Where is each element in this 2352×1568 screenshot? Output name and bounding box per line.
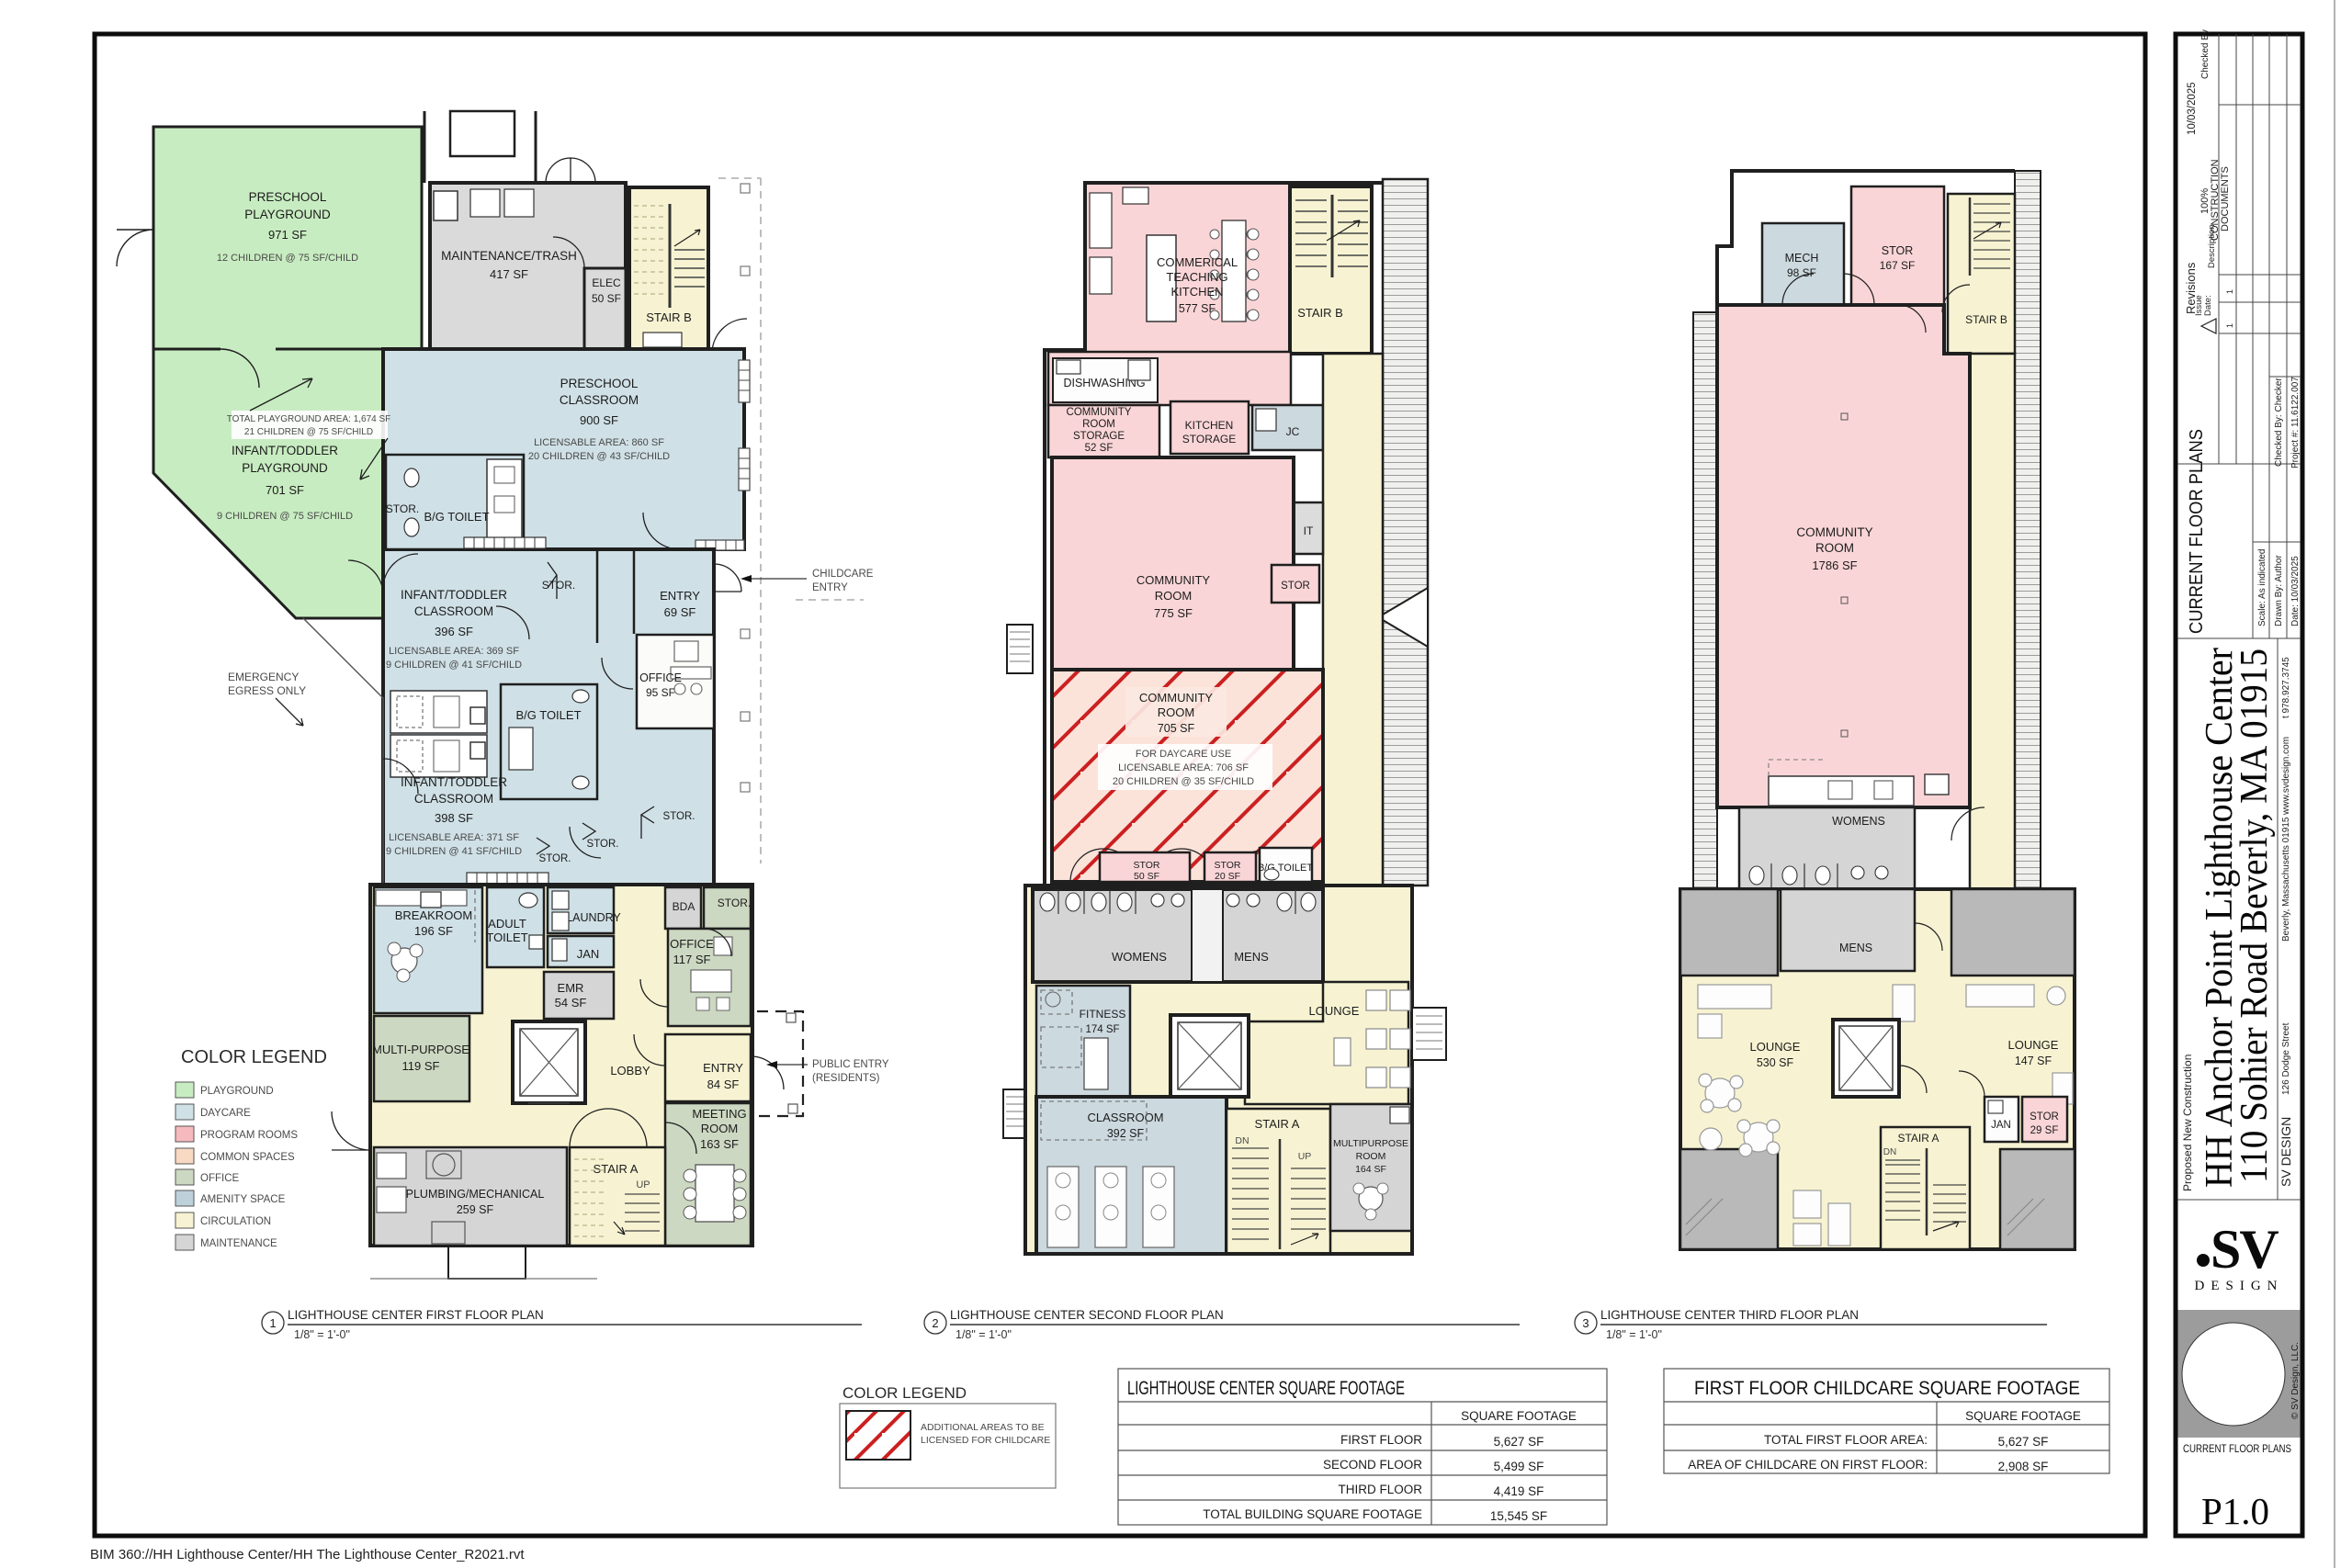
svg-text:705 SF: 705 SF: [1158, 722, 1195, 735]
svg-text:20 SF: 20 SF: [1215, 871, 1240, 882]
svg-text:ENTRY: ENTRY: [703, 1061, 743, 1075]
svg-text:20 CHILDREN @ 43 SF/CHILD: 20 CHILDREN @ 43 SF/CHILD: [528, 451, 670, 462]
svg-text:DESIGN: DESIGN: [2195, 1279, 2284, 1293]
svg-text:CLASSROOM: CLASSROOM: [560, 393, 639, 407]
svg-text:STAIR B: STAIR B: [1297, 306, 1343, 320]
svg-text:4,419 SF: 4,419 SF: [1494, 1484, 1544, 1498]
svg-text:Project #: 11.6122.007: Project #: 11.6122.007: [2290, 377, 2301, 468]
svg-text:SECOND FLOOR: SECOND FLOOR: [1323, 1458, 1422, 1472]
svg-text:MAINTENANCE/TRASH: MAINTENANCE/TRASH: [441, 249, 577, 263]
svg-text:STAIR A: STAIR A: [1897, 1132, 1939, 1145]
svg-text:Beverly, Massachusetts 01915: Beverly, Massachusetts 01915: [2281, 817, 2291, 942]
svg-text:84 SF: 84 SF: [707, 1077, 740, 1091]
svg-text:900 SF: 900 SF: [580, 413, 618, 427]
svg-text:UP: UP: [636, 1179, 650, 1190]
svg-text:PRESCHOOL: PRESCHOOL: [560, 377, 639, 390]
svg-text:SQUARE FOOTAGE: SQUARE FOOTAGE: [1965, 1409, 2081, 1423]
svg-text:INFANT/TODDLER: INFANT/TODDLER: [401, 588, 507, 602]
svg-text:KITCHEN: KITCHEN: [1185, 419, 1234, 432]
svg-text:LIGHTHOUSE CENTER SECOND FLOOR: LIGHTHOUSE CENTER SECOND FLOOR PLAN: [950, 1308, 1224, 1322]
svg-text:LIGHTHOUSE CENTER SQUARE FOOTA: LIGHTHOUSE CENTER SQUARE FOOTAGE: [1127, 1378, 1405, 1399]
svg-text:Proposed New Construction: Proposed New Construction: [2181, 1055, 2194, 1191]
svg-text:FIRST FLOOR: FIRST FLOOR: [1340, 1433, 1422, 1447]
svg-text:21 CHILDREN @ 75 SF/CHILD: 21 CHILDREN @ 75 SF/CHILD: [244, 427, 373, 437]
svg-text:9 CHILDREN @ 75 SF/CHILD: 9 CHILDREN @ 75 SF/CHILD: [217, 511, 353, 522]
svg-text:54 SF: 54 SF: [555, 996, 587, 1010]
svg-text:29 SF: 29 SF: [2030, 1125, 2059, 1136]
svg-text:MENS: MENS: [1234, 950, 1269, 964]
svg-text:STOR: STOR: [1882, 244, 1914, 257]
svg-text:MEETING: MEETING: [692, 1107, 746, 1121]
svg-text:CHILDCARE: CHILDCARE: [812, 569, 874, 580]
svg-text:WOMENS: WOMENS: [1112, 950, 1167, 964]
svg-text:ENTRY: ENTRY: [812, 582, 848, 593]
svg-text:FIRST FLOOR CHILDCARE SQUARE F: FIRST FLOOR CHILDCARE SQUARE FOOTAGE: [1694, 1378, 2080, 1399]
svg-text:SQUARE FOOTAGE: SQUARE FOOTAGE: [1461, 1409, 1577, 1423]
svg-text:THIRD FLOOR: THIRD FLOOR: [1338, 1483, 1422, 1496]
svg-text:9 CHILDREN @ 41 SF/CHILD: 9 CHILDREN @ 41 SF/CHILD: [386, 846, 522, 857]
svg-text:STORAGE: STORAGE: [1073, 431, 1125, 442]
svg-text:147 SF: 147 SF: [2015, 1055, 2052, 1067]
svg-text:174 SF: 174 SF: [1085, 1024, 1119, 1035]
svg-text:COMMUNITY: COMMUNITY: [1067, 407, 1132, 418]
svg-text:Scale: As indicated: Scale: As indicated: [2257, 549, 2267, 627]
svg-text:12 CHILDREN @ 75 SF/CHILD: 12 CHILDREN @ 75 SF/CHILD: [217, 253, 358, 264]
svg-text:ADULT: ADULT: [488, 917, 526, 931]
svg-text:ROOM: ROOM: [701, 1122, 738, 1135]
svg-text:STOR.: STOR.: [539, 853, 571, 864]
svg-text:OFFICE: OFFICE: [200, 1173, 239, 1184]
svg-text:STOR.: STOR.: [542, 579, 575, 592]
svg-text:TEACHING: TEACHING: [1166, 270, 1227, 284]
svg-text:ROOM: ROOM: [1158, 705, 1194, 719]
svg-text:OFFICE: OFFICE: [670, 937, 714, 951]
svg-text:119 SF: 119 SF: [402, 1059, 440, 1073]
svg-text:LOUNGE: LOUNGE: [2008, 1038, 2059, 1052]
svg-text:STOR.: STOR.: [386, 502, 419, 515]
svg-text:EMERGENCY: EMERGENCY: [228, 671, 299, 683]
svg-text:2,908 SF: 2,908 SF: [1998, 1460, 2049, 1473]
svg-text:STORAGE: STORAGE: [1182, 433, 1236, 446]
svg-text:JAN: JAN: [577, 947, 600, 961]
svg-text:398 SF: 398 SF: [435, 811, 473, 825]
svg-text:MENS: MENS: [1839, 942, 1872, 954]
svg-text:5,627 SF: 5,627 SF: [1494, 1435, 1544, 1449]
svg-text:110 Sohier Road Beverly, MA 01: 110 Sohier Road Beverly, MA 01915: [2233, 649, 2276, 1183]
svg-text:ENTRY: ENTRY: [660, 589, 700, 603]
svg-text:15,545 SF: 15,545 SF: [1490, 1509, 1547, 1523]
svg-text:STOR: STOR: [1134, 860, 1160, 871]
svg-text:196 SF: 196 SF: [414, 924, 453, 938]
svg-text:MAINTENANCE: MAINTENANCE: [200, 1238, 277, 1249]
svg-text:FOR DAYCARE USE: FOR DAYCARE USE: [1136, 749, 1231, 760]
svg-text:417 SF: 417 SF: [490, 267, 528, 281]
svg-text:BDA: BDA: [673, 900, 695, 913]
svg-text:ELEC: ELEC: [592, 276, 621, 289]
svg-text:Date:: Date:: [2203, 295, 2213, 316]
svg-text:52 SF: 52 SF: [1085, 443, 1114, 454]
svg-text:PLUMBING/MECHANICAL: PLUMBING/MECHANICAL: [406, 1188, 545, 1201]
svg-text:STAIR B: STAIR B: [646, 310, 692, 324]
svg-text:COMMUNITY: COMMUNITY: [1139, 691, 1213, 705]
svg-text:STAIR A: STAIR A: [594, 1162, 639, 1176]
svg-text:JC: JC: [1286, 425, 1300, 438]
svg-text:DAYCARE: DAYCARE: [200, 1108, 251, 1119]
svg-text:5,627 SF: 5,627 SF: [1998, 1435, 2049, 1449]
svg-text:TOTAL BUILDING SQUARE FOOTAGE: TOTAL BUILDING SQUARE FOOTAGE: [1203, 1507, 1422, 1521]
svg-text:577 SF: 577 SF: [1179, 302, 1216, 315]
svg-text:ROOM: ROOM: [1155, 589, 1192, 603]
svg-text:LAUNDRY: LAUNDRY: [566, 911, 621, 924]
svg-text:PRESCHOOL: PRESCHOOL: [249, 190, 327, 204]
svg-text:STOR: STOR: [2030, 1111, 2059, 1122]
svg-text:LICENSABLE AREA: 706 SF: LICENSABLE AREA: 706 SF: [1118, 762, 1249, 773]
svg-text:CURRENT FLOOR PLANS: CURRENT FLOOR PLANS: [2187, 429, 2207, 634]
svg-text:Date: 10/03/2025: Date: 10/03/2025: [2290, 556, 2301, 626]
svg-text:2: 2: [932, 1316, 938, 1330]
svg-text:259 SF: 259 SF: [457, 1203, 494, 1216]
svg-text:UP: UP: [1298, 1151, 1312, 1162]
svg-text:Checked By: Checker: Checked By: Checker: [2274, 378, 2284, 467]
svg-text:MULTIPURPOSE: MULTIPURPOSE: [1333, 1138, 1408, 1149]
svg-text:PLAYGROUND: PLAYGROUND: [200, 1086, 274, 1097]
svg-text:(RESIDENTS): (RESIDENTS): [812, 1073, 880, 1084]
svg-text:FITNESS: FITNESS: [1080, 1008, 1126, 1021]
svg-text:20 CHILDREN @ 35 SF/CHILD: 20 CHILDREN @ 35 SF/CHILD: [1113, 776, 1254, 787]
svg-text:KITCHEN: KITCHEN: [1170, 285, 1223, 299]
svg-text:9 CHILDREN @ 41 SF/CHILD: 9 CHILDREN @ 41 SF/CHILD: [386, 660, 522, 671]
svg-text:ROOM: ROOM: [1815, 541, 1854, 555]
svg-text:1/8" = 1'-0": 1/8" = 1'-0": [1606, 1328, 1662, 1341]
svg-text:BIM 360://HH Lighthouse Center: BIM 360://HH Lighthouse Center/HH The Li…: [90, 1547, 525, 1562]
svg-text:98 SF: 98 SF: [1787, 266, 1816, 279]
svg-text:1/8" = 1'-0": 1/8" = 1'-0": [294, 1328, 350, 1341]
svg-text:LOBBY: LOBBY: [610, 1064, 650, 1077]
svg-text:164 SF: 164 SF: [1355, 1164, 1386, 1175]
svg-text:BREAKROOM: BREAKROOM: [395, 908, 473, 922]
svg-text:AMENITY SPACE: AMENITY SPACE: [200, 1194, 286, 1205]
svg-text:CLASSROOM: CLASSROOM: [1087, 1111, 1163, 1124]
svg-text:ROOM: ROOM: [1356, 1151, 1386, 1162]
svg-text:69 SF: 69 SF: [664, 605, 696, 619]
svg-text:STOR.: STOR.: [718, 897, 751, 909]
svg-text:P1.0: P1.0: [2201, 1490, 2269, 1532]
svg-text:OFFICE: OFFICE: [639, 671, 682, 684]
svg-text:COMMUNITY: COMMUNITY: [1136, 573, 1210, 587]
svg-text:STOR.: STOR.: [663, 811, 695, 822]
svg-text:AREA OF CHILDCARE ON FIRST FLO: AREA OF CHILDCARE ON FIRST FLOOR:: [1688, 1458, 1928, 1472]
svg-text:3: 3: [1582, 1316, 1589, 1330]
svg-text:DN: DN: [1235, 1135, 1249, 1146]
svg-text:LOUNGE: LOUNGE: [1309, 1004, 1360, 1018]
svg-text:COMMUNITY: COMMUNITY: [1796, 525, 1872, 539]
svg-text:CLASSROOM: CLASSROOM: [414, 604, 493, 618]
svg-text:STOR: STOR: [1281, 581, 1310, 592]
svg-text:www.svdesign.com: www.svdesign.com: [2281, 737, 2291, 816]
svg-text:PROGRAM ROOMS: PROGRAM ROOMS: [200, 1130, 298, 1141]
svg-text:Checked By: Checked By: [2200, 29, 2211, 79]
svg-text:LOUNGE: LOUNGE: [1750, 1040, 1801, 1054]
svg-text:167 SF: 167 SF: [1880, 259, 1916, 272]
svg-text:LIGHTHOUSE CENTER THIRD FLOOR: LIGHTHOUSE CENTER THIRD FLOOR PLAN: [1600, 1308, 1859, 1322]
svg-text:WOMENS: WOMENS: [1832, 815, 1885, 828]
svg-text:1: 1: [2225, 323, 2234, 328]
svg-text:126 Dodge Street: 126 Dodge Street: [2281, 1022, 2291, 1095]
svg-text:701 SF: 701 SF: [266, 483, 304, 497]
svg-text:LICENSED FOR CHILDCARE: LICENSED FOR CHILDCARE: [921, 1435, 1050, 1446]
svg-text:CLASSROOM: CLASSROOM: [414, 792, 493, 806]
svg-text:IT: IT: [1304, 525, 1314, 537]
svg-text:LICENSABLE AREA: 371 SF: LICENSABLE AREA: 371 SF: [389, 832, 519, 843]
svg-text:MECH: MECH: [1785, 252, 1819, 265]
svg-text:971 SF: 971 SF: [268, 228, 307, 242]
svg-text:EMR: EMR: [558, 981, 584, 995]
svg-text:JAN: JAN: [1991, 1120, 2011, 1131]
svg-text:PUBLIC ENTRY: PUBLIC ENTRY: [812, 1059, 889, 1070]
svg-text:MULTI-PURPOSE: MULTI-PURPOSE: [372, 1043, 469, 1056]
svg-text:SV DESIGN: SV DESIGN: [2278, 1117, 2293, 1187]
svg-text:B/G TOILET: B/G TOILET: [515, 708, 581, 722]
svg-text:EGRESS ONLY: EGRESS ONLY: [228, 684, 306, 697]
svg-text:117 SF: 117 SF: [673, 953, 711, 966]
svg-text:STAIR B: STAIR B: [1965, 313, 2007, 326]
svg-text:ROOM: ROOM: [1082, 419, 1115, 430]
svg-text:1: 1: [2225, 289, 2234, 294]
svg-text:PLAYGROUND: PLAYGROUND: [244, 208, 331, 221]
svg-text:TOTAL FIRST FLOOR AREA:: TOTAL FIRST FLOOR AREA:: [1764, 1433, 1928, 1447]
svg-text:© SV Design, LLC.: © SV Design, LLC.: [2290, 1342, 2301, 1419]
svg-text:1786 SF: 1786 SF: [1812, 558, 1857, 572]
svg-text:COMMON SPACES: COMMON SPACES: [200, 1152, 295, 1163]
svg-text:50 SF: 50 SF: [592, 292, 621, 305]
svg-text:COMMERICAL: COMMERICAL: [1157, 255, 1238, 269]
svg-text:50 SF: 50 SF: [1134, 871, 1159, 882]
svg-text:163 SF: 163 SF: [700, 1137, 739, 1151]
svg-text:COLOR LEGEND: COLOR LEGEND: [842, 1384, 967, 1402]
svg-text:95 SF: 95 SF: [646, 686, 675, 699]
svg-text:LICENSABLE AREA: 860 SF: LICENSABLE AREA: 860 SF: [534, 437, 664, 448]
svg-text:B/G TOILET: B/G TOILET: [424, 510, 489, 524]
svg-text:TOTAL PLAYGROUND AREA: 1,674 S: TOTAL PLAYGROUND AREA: 1,674 SF: [227, 414, 391, 424]
svg-text:t 978.927.3745: t 978.927.3745: [2281, 657, 2291, 718]
svg-text:LICENSABLE AREA: 369 SF: LICENSABLE AREA: 369 SF: [389, 646, 519, 657]
svg-text:STOR: STOR: [1215, 860, 1241, 871]
svg-text:392 SF: 392 SF: [1107, 1127, 1145, 1140]
svg-text:INFANT/TODDLER: INFANT/TODDLER: [232, 444, 338, 457]
svg-text:530 SF: 530 SF: [1757, 1056, 1794, 1069]
svg-text:CURRENT FLOOR PLANS: CURRENT FLOOR PLANS: [2183, 1442, 2291, 1455]
svg-text:775 SF: 775 SF: [1154, 606, 1193, 620]
svg-text:396 SF: 396 SF: [435, 625, 473, 638]
svg-text:ADDITIONAL AREAS TO BE: ADDITIONAL AREAS TO BE: [921, 1422, 1045, 1433]
svg-text:1: 1: [269, 1316, 276, 1330]
svg-text:DN: DN: [1883, 1147, 1896, 1157]
svg-text:COLOR LEGEND: COLOR LEGEND: [181, 1047, 327, 1067]
svg-text:LIGHTHOUSE CENTER FIRST FLOOR: LIGHTHOUSE CENTER FIRST FLOOR PLAN: [288, 1308, 544, 1322]
svg-text:Drawn By: Author: Drawn By: Author: [2274, 555, 2284, 626]
svg-text:STAIR A: STAIR A: [1255, 1117, 1300, 1131]
svg-text:10/03/2025: 10/03/2025: [2187, 82, 2198, 135]
svg-text:1/8" = 1'-0": 1/8" = 1'-0": [955, 1328, 1012, 1341]
svg-text:PLAYGROUND: PLAYGROUND: [242, 461, 328, 475]
svg-text:CIRCULATION: CIRCULATION: [200, 1216, 271, 1227]
svg-text:STOR.: STOR.: [587, 839, 619, 850]
svg-text:DOCUMENTS: DOCUMENTS: [2220, 166, 2231, 231]
svg-text:TOILET: TOILET: [486, 931, 527, 944]
svg-text:SV: SV: [2211, 1219, 2278, 1280]
svg-text:5,499 SF: 5,499 SF: [1494, 1460, 1544, 1473]
